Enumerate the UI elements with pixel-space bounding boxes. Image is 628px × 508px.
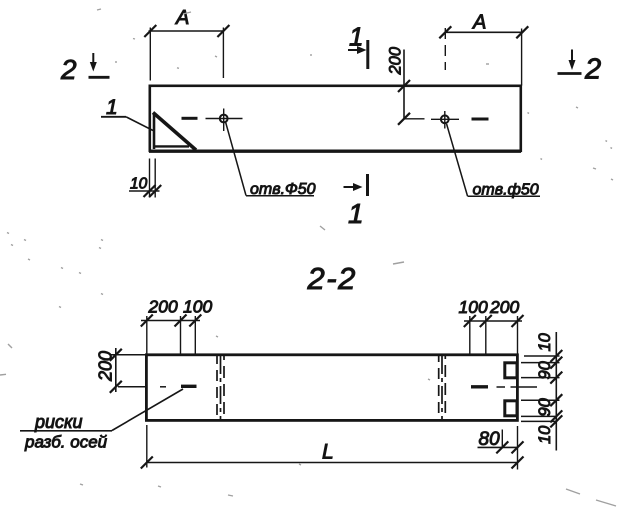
svg-text:2: 2: [60, 54, 77, 85]
svg-text:риски: риски: [34, 412, 83, 432]
svg-text:10: 10: [130, 176, 148, 193]
svg-text:200: 200: [148, 297, 178, 317]
svg-text:A: A: [472, 12, 486, 34]
svg-text:1: 1: [106, 96, 118, 119]
svg-text:100: 100: [459, 297, 488, 317]
svg-text:1: 1: [349, 22, 363, 52]
svg-text:80: 80: [479, 429, 501, 450]
svg-text:90: 90: [536, 397, 554, 416]
svg-text:90: 90: [536, 360, 554, 379]
svg-text:A: A: [175, 7, 189, 29]
svg-text:2-2: 2-2: [307, 261, 357, 296]
svg-text:200: 200: [489, 297, 519, 317]
svg-text:10: 10: [536, 425, 554, 444]
svg-text:2: 2: [584, 54, 601, 86]
svg-text:100: 100: [183, 297, 212, 317]
svg-text:отв.ф50: отв.ф50: [473, 182, 539, 199]
svg-text:отв.Ф50: отв.Ф50: [250, 181, 316, 198]
svg-text:200: 200: [387, 46, 405, 75]
svg-text:L: L: [322, 441, 334, 464]
svg-text:1: 1: [348, 198, 364, 229]
svg-text:разб. осей: разб. осей: [24, 433, 108, 452]
svg-text:10: 10: [536, 332, 554, 351]
svg-text:200: 200: [96, 351, 116, 382]
